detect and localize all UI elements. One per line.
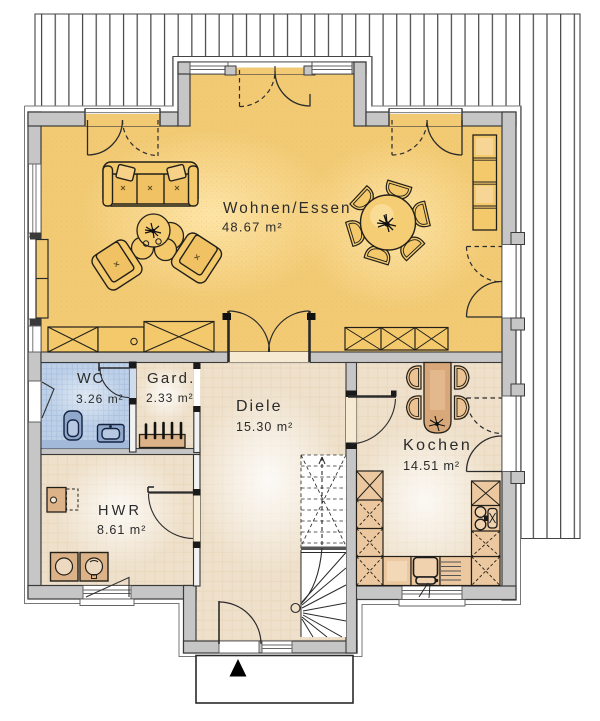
svg-text:3.26 m²: 3.26 m² xyxy=(76,392,124,406)
svg-text:Gard.: Gard. xyxy=(147,370,196,387)
svg-text:14.51 m²: 14.51 m² xyxy=(403,458,460,473)
svg-text:WC: WC xyxy=(77,371,105,387)
svg-text:HWR: HWR xyxy=(98,503,142,519)
svg-text:48.67 m²: 48.67 m² xyxy=(222,220,283,235)
svg-text:15.30 m²: 15.30 m² xyxy=(236,420,293,434)
svg-text:Wohnen/Essen: Wohnen/Essen xyxy=(223,200,352,217)
svg-text:8.61 m²: 8.61 m² xyxy=(97,523,146,537)
svg-text:Kochen: Kochen xyxy=(403,437,472,454)
svg-text:2.33 m²: 2.33 m² xyxy=(146,391,194,405)
svg-text:Diele: Diele xyxy=(236,398,282,415)
